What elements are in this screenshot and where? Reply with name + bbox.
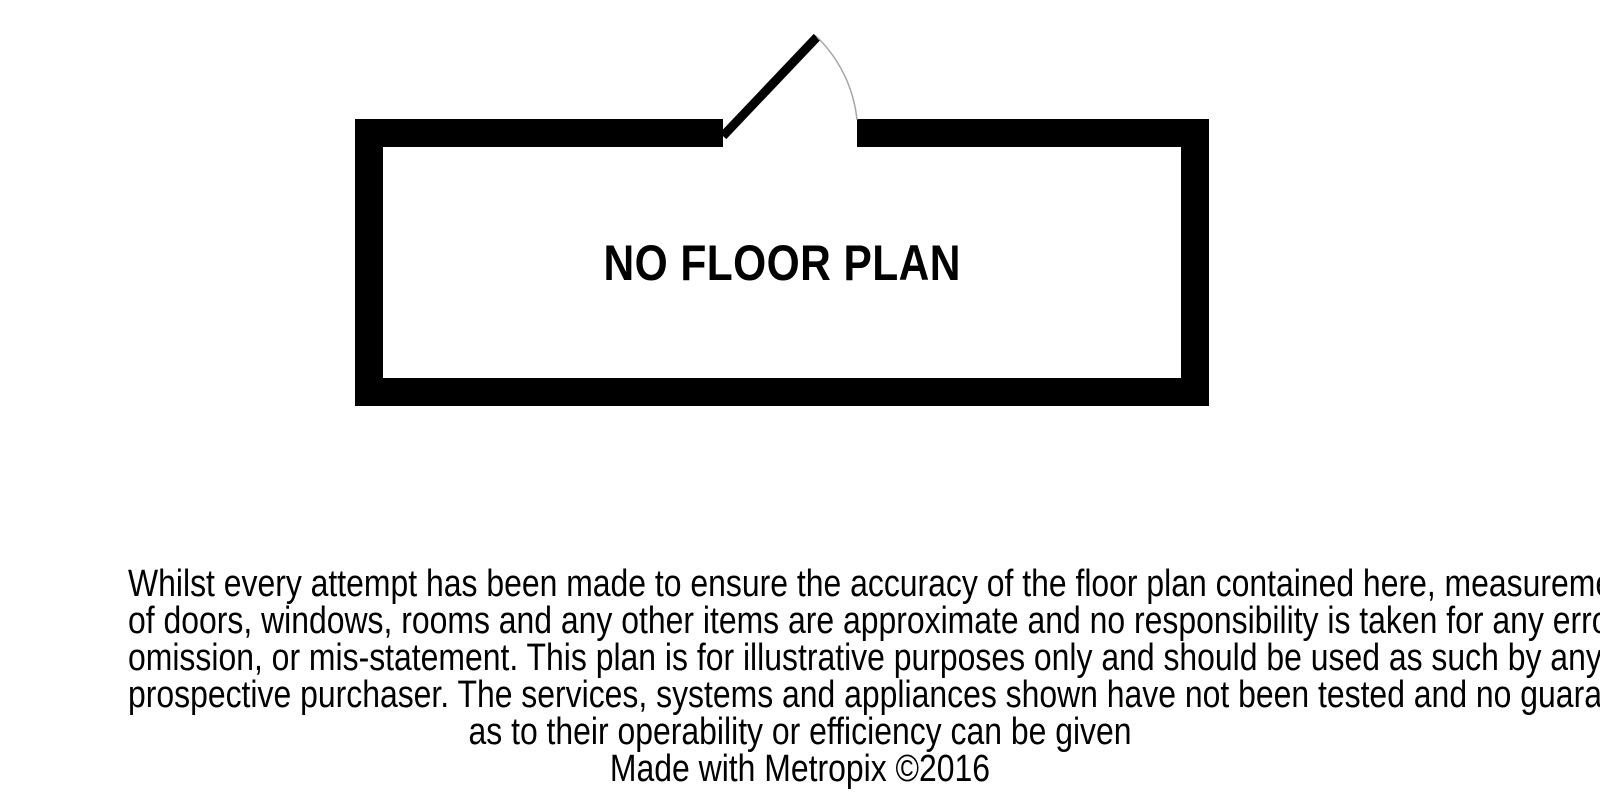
floorplan-placeholder-image: NO FLOOR PLAN Whilst every attempt has b…: [0, 0, 1600, 811]
metropix-credit: Made with Metropix ©2016: [128, 751, 1472, 788]
disclaimer-line: as to their operability or efficiency ca…: [128, 714, 1472, 751]
disclaimer-text-block: Whilst every attempt has been made to en…: [0, 566, 1600, 788]
door-swing-arc-icon: [817, 37, 857, 120]
disclaimer-line: Whilst every attempt has been made to en…: [128, 566, 1472, 603]
no-floor-plan-label: NO FLOOR PLAN: [603, 234, 960, 292]
room-outline: NO FLOOR PLAN: [355, 119, 1209, 406]
doorway-gap: [723, 119, 857, 147]
disclaimer-line: of doors, windows, rooms and any other i…: [128, 603, 1472, 640]
disclaimer-line: omission, or mis-statement. This plan is…: [128, 640, 1472, 677]
disclaimer-line: prospective purchaser. The services, sys…: [128, 677, 1472, 714]
